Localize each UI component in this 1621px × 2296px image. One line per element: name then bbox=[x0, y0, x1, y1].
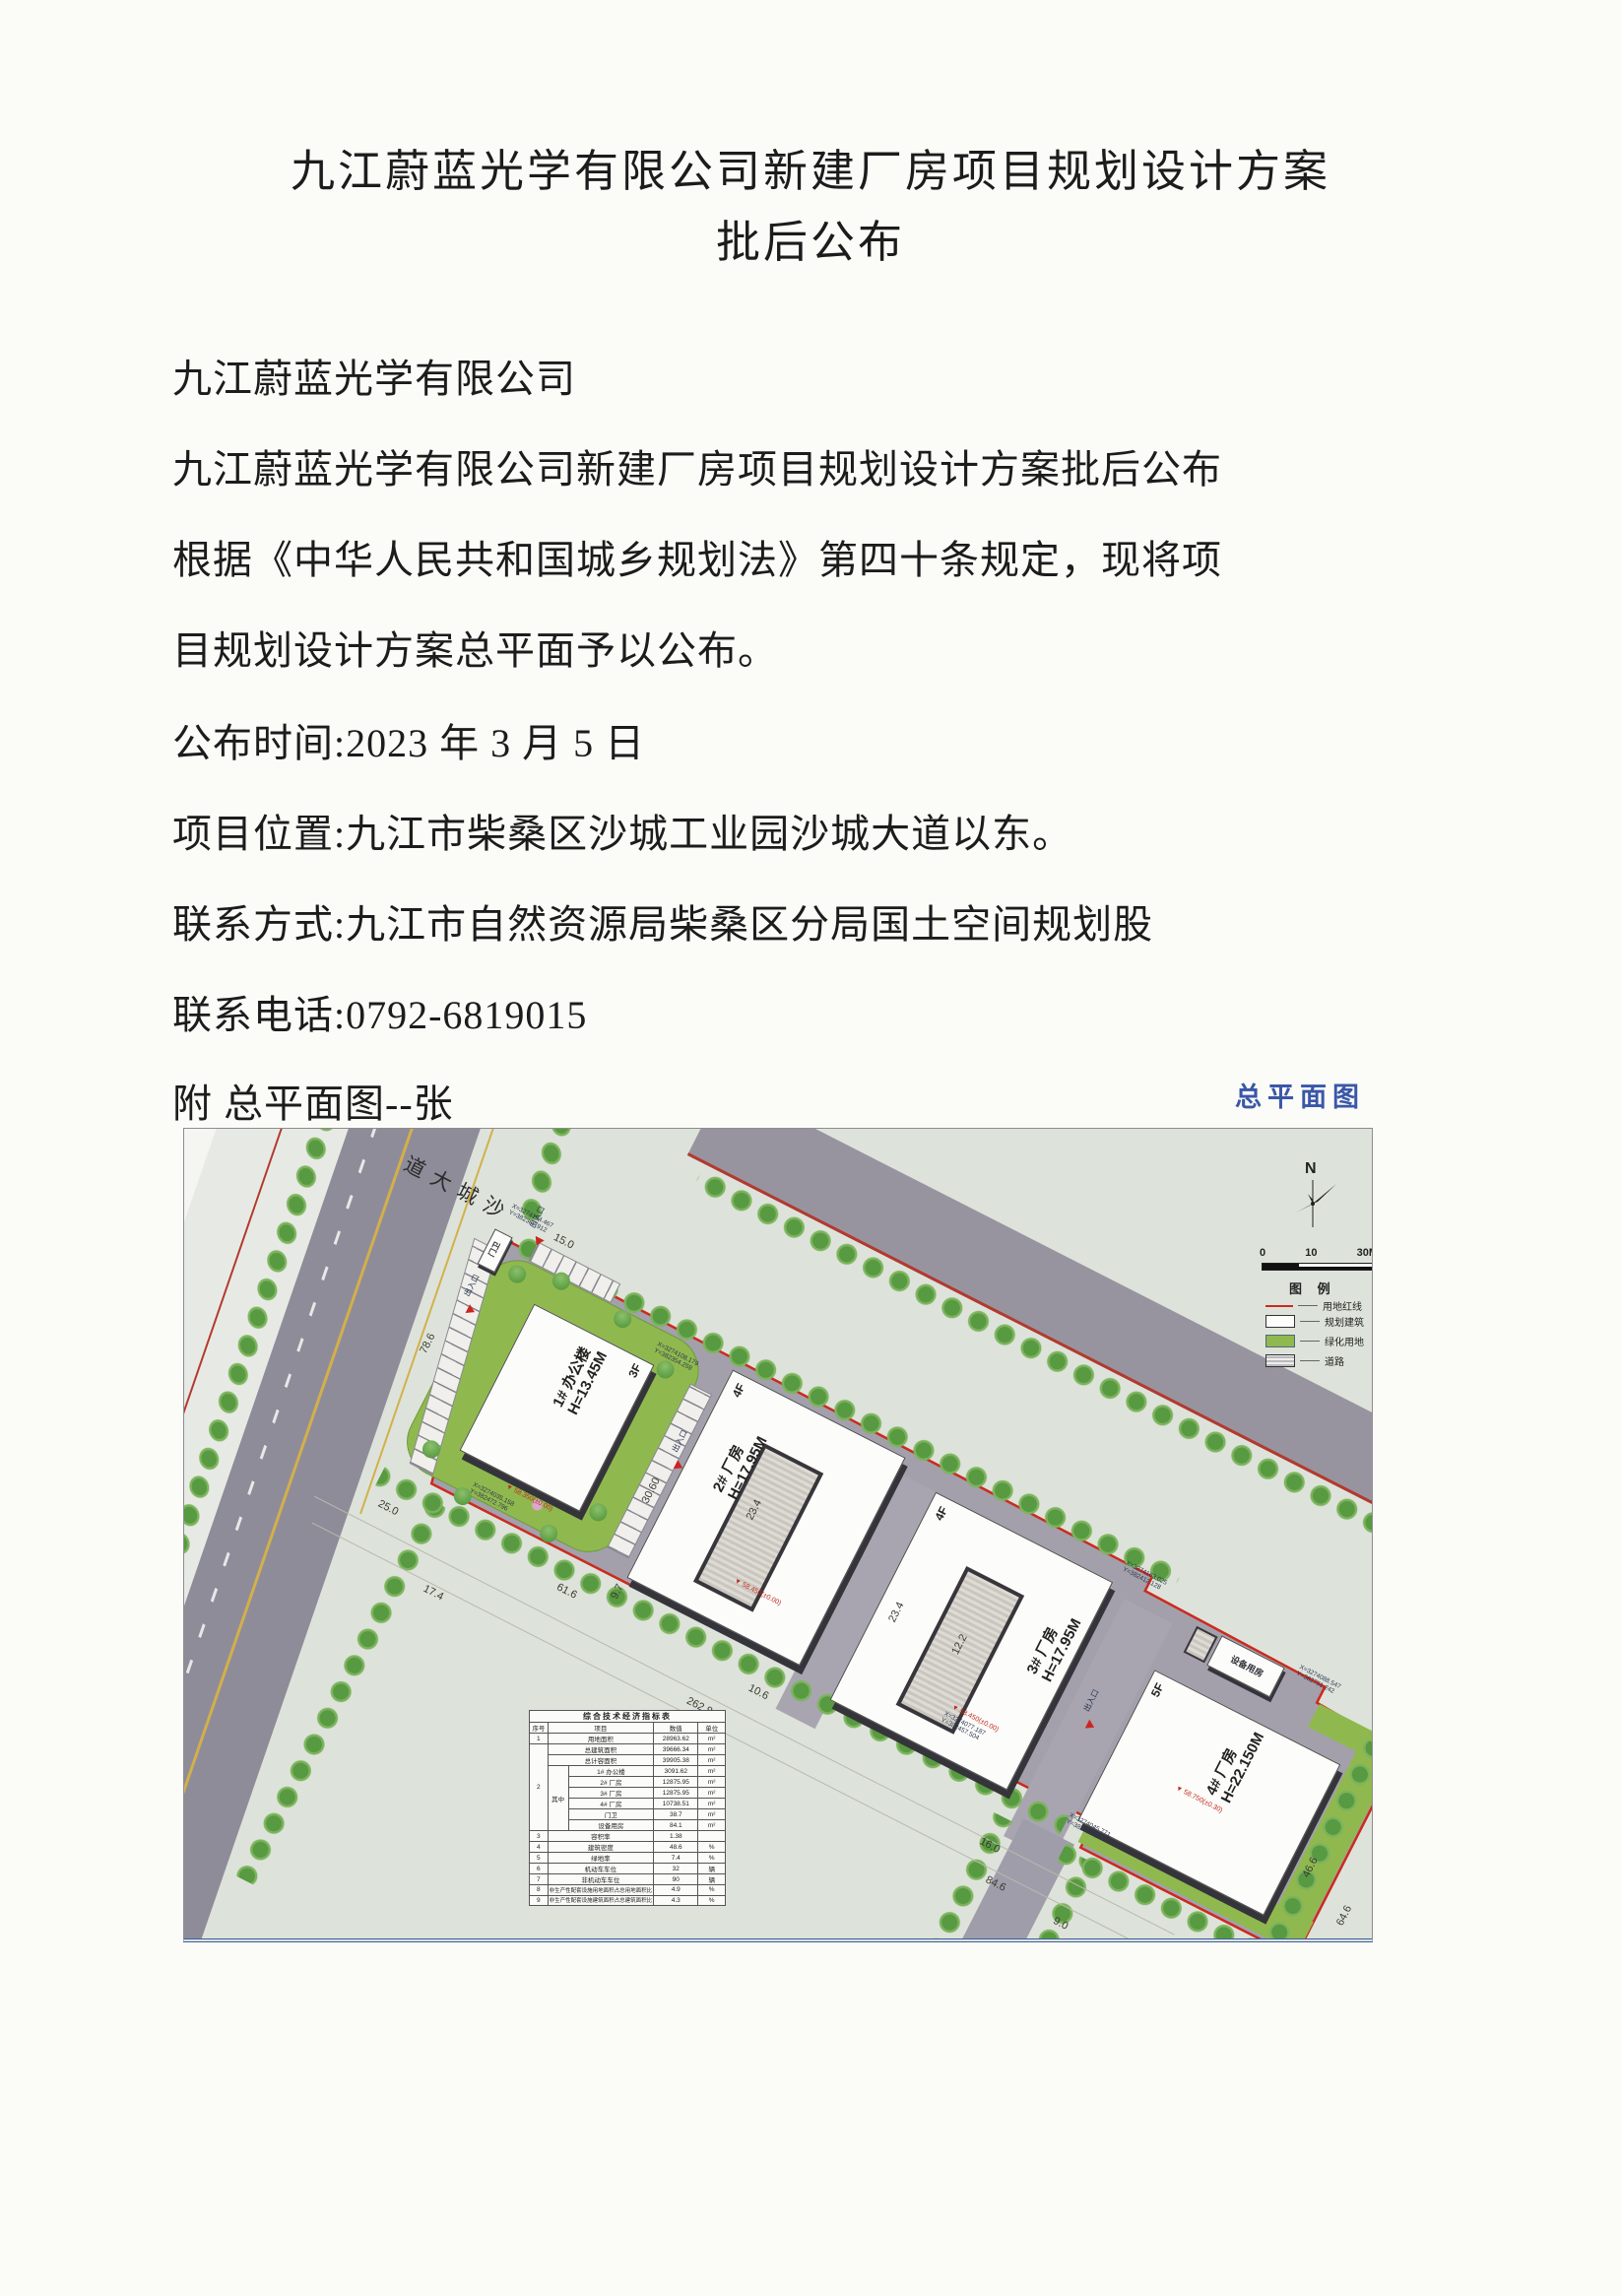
paragraph: 项目位置:九江市柴桑区沙城工业园沙城大道以东。 bbox=[172, 802, 1394, 859]
legend-building-swatch bbox=[1265, 1315, 1295, 1328]
title-line-2: 批后公布 bbox=[0, 207, 1621, 278]
paragraph: 根据《中华人民共和国城乡规划法》第四十条规定，现将项 bbox=[172, 528, 1394, 585]
paragraph: 联系电话:0792-6819015 bbox=[172, 983, 1394, 1040]
north-arrow-icon bbox=[1287, 1176, 1338, 1231]
page-title: 九江蔚蓝光学有限公司新建厂房项目规划设计方案 批后公布 bbox=[0, 136, 1621, 278]
legend-item-redline: 用地红线 bbox=[1265, 1298, 1362, 1313]
paragraph: 目规划设计方案总平面予以公布。 bbox=[172, 619, 1394, 676]
site-plan-image: 沙城大道 bbox=[183, 1128, 1373, 1942]
title-line-1: 九江蔚蓝光学有限公司新建厂房项目规划设计方案 bbox=[0, 136, 1621, 207]
table-title: 综合技术经济指标表 bbox=[530, 1711, 726, 1723]
indicator-table: 综合技术经济指标表 序号 项目 数值 单位 1用地面积28963.62m² 2总… bbox=[529, 1710, 726, 1906]
legend-road-swatch bbox=[1265, 1354, 1295, 1367]
legend-item-building: 规划建筑 bbox=[1265, 1314, 1364, 1329]
paragraph: 九江蔚蓝光学有限公司 bbox=[172, 347, 1394, 404]
paragraph: 公布时间:2023 年 3 月 5 日 bbox=[172, 711, 1394, 768]
paragraph: 联系方式:九江市自然资源局柴桑区分局国土空间规划股 bbox=[172, 892, 1394, 950]
scale-bar bbox=[1262, 1263, 1373, 1271]
legend-green-swatch bbox=[1265, 1335, 1295, 1347]
legend-redline-swatch bbox=[1265, 1305, 1293, 1307]
plan-caption: 总平面图 bbox=[183, 1076, 1365, 1114]
paragraph: 九江蔚蓝光学有限公司新建厂房项目规划设计方案批后公布 bbox=[172, 437, 1394, 494]
scale-labels: 0 10 30M bbox=[1260, 1247, 1373, 1259]
legend-item-green: 绿化用地 bbox=[1265, 1334, 1364, 1348]
legend-title: 图 例 bbox=[1289, 1279, 1336, 1297]
legend-item-road: 道路 bbox=[1265, 1353, 1344, 1368]
